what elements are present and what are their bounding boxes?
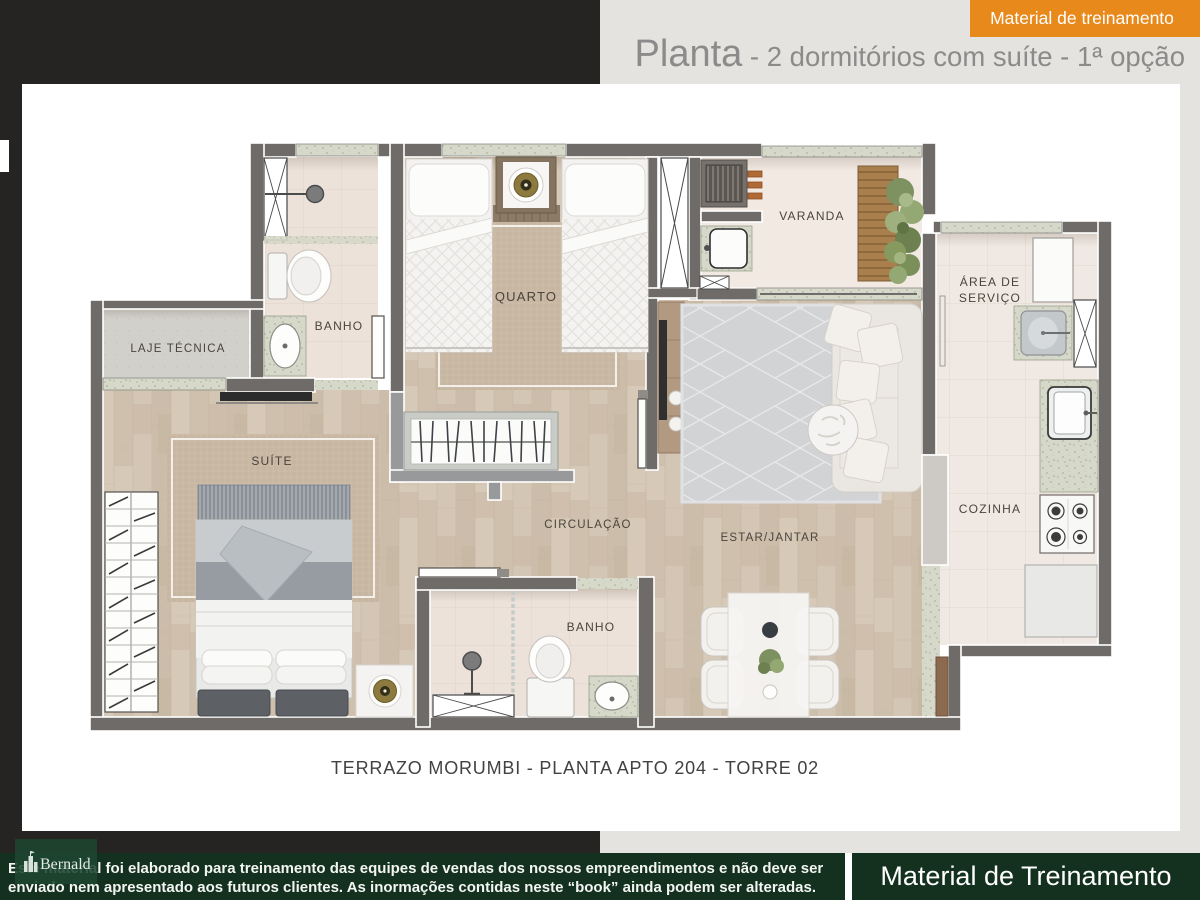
svg-text:SERVIÇO: SERVIÇO [959, 291, 1021, 305]
svg-text:ESTAR/JANTAR: ESTAR/JANTAR [721, 532, 820, 544]
svg-text:BANHO: BANHO [567, 620, 616, 634]
svg-text:Bernald: Bernald [40, 856, 91, 873]
svg-text:LAJE TÉCNICA: LAJE TÉCNICA [130, 342, 225, 355]
svg-text:CIRCULAÇÃO: CIRCULAÇÃO [544, 518, 631, 531]
svg-text:SUÍTE: SUÍTE [251, 453, 292, 468]
svg-text:BANHO: BANHO [315, 319, 364, 333]
svg-text:COZINHA: COZINHA [959, 502, 1021, 516]
svg-text:ÁREA DE: ÁREA DE [960, 274, 1020, 289]
svg-text:QUARTO: QUARTO [495, 289, 557, 304]
svg-text:VARANDA: VARANDA [779, 209, 845, 223]
